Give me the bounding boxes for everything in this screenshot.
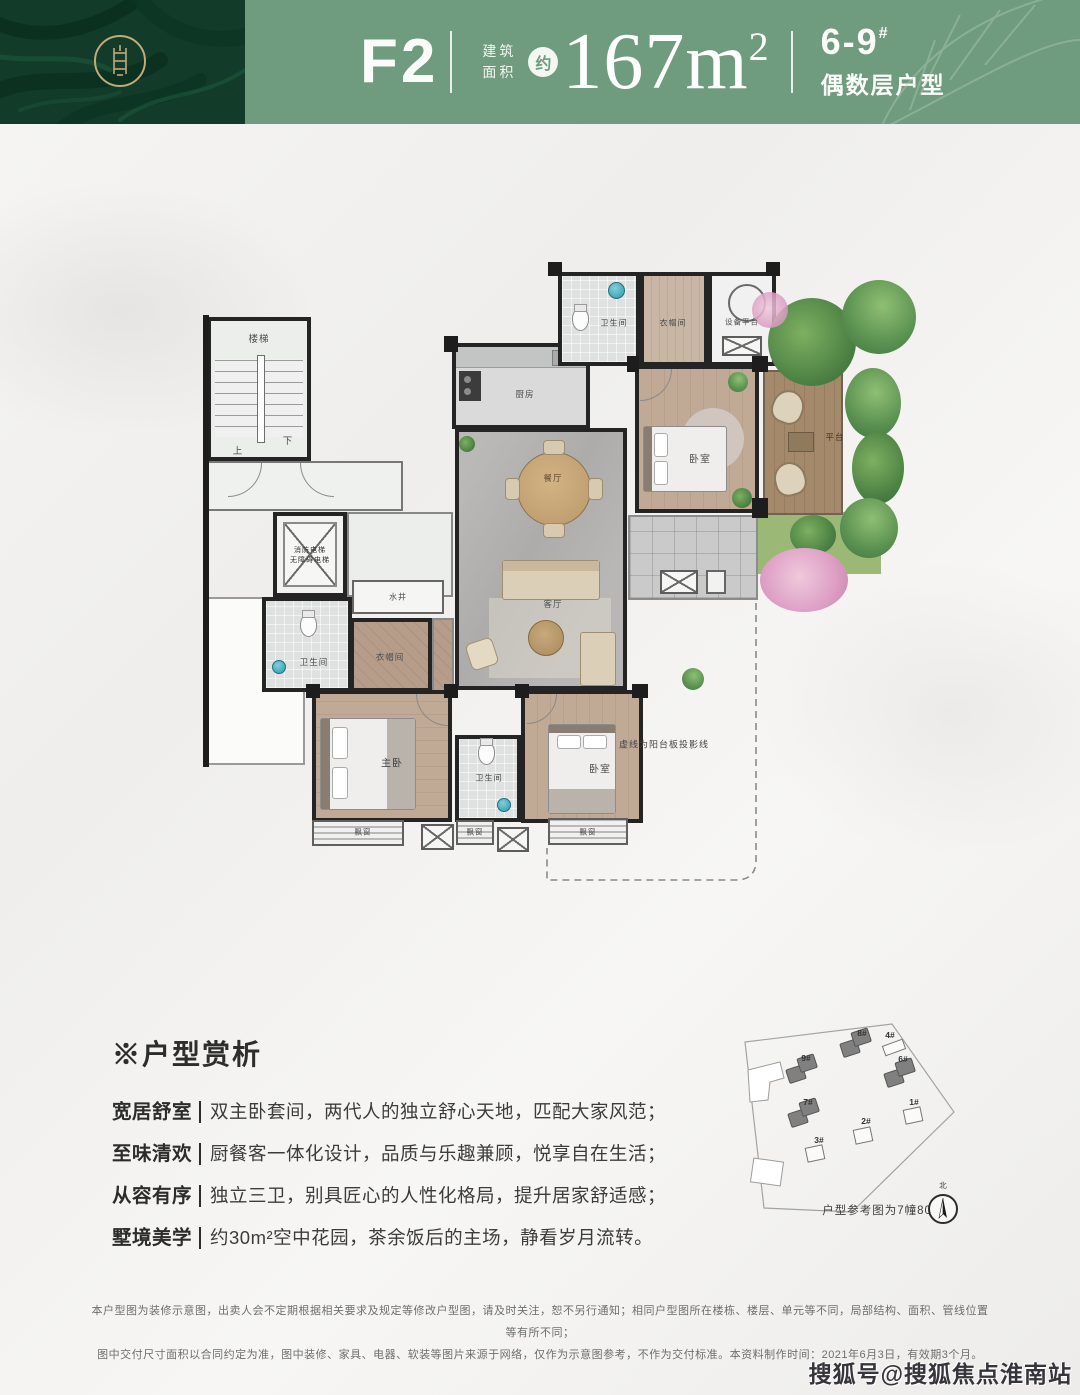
analysis-item-text: 厨餐客一体化设计，品质与乐趣兼顾，悦享自在生活； [210,1143,666,1164]
hedge-icon [845,368,901,438]
dining-chair-icon [505,478,520,500]
analysis-item: 从容有序独立三卫，别具匠心的人性化格局，提升居家舒适感； [112,1179,692,1208]
room-label-bay1: 飘窗 [355,827,372,838]
building-label: 6# [898,1054,907,1064]
toilet-icon [572,308,589,331]
plant-icon [682,668,704,690]
room-bath-top [558,272,640,366]
compass-icon [928,1194,958,1224]
room-label-bath-top: 卫生间 [601,318,628,329]
room-label-bedroom-top: 卧室 [689,451,711,466]
room-label-kitchen: 厨房 [515,388,534,400]
floor-plan: 楼梯 上 下 消防电梯 无障碍电梯 水井 卫生间 衣帽间 主卧 卫生间 [0,0,1080,1000]
burner [464,376,471,383]
headboard [321,719,330,809]
room-label-stairs: 楼梯 [248,331,269,345]
analysis-item: 至味清欢厨餐客一体化设计，品质与乐趣兼顾，悦享自在生活； [112,1137,692,1166]
sofa-icon [502,560,600,600]
analysis-item-text: 约30m²空中花园，茶余饭后的主场，静看岁月流转。 [210,1227,653,1248]
ac-platform [421,824,454,850]
building-label: 2# [861,1116,870,1126]
stairs-down-label: 下 [283,433,294,447]
pillow-icon [654,461,668,485]
room-label-bay3: 飘窗 [580,827,597,838]
analysis-item-label: 至味清欢 [112,1143,201,1165]
analysis-item-text: 独立三卫，别具匠心的人性化格局，提升居家舒适感； [210,1185,666,1206]
wall [306,684,320,698]
deck-table-icon [788,432,814,452]
analysis-item-label: 墅境美学 [112,1227,201,1249]
pillow-icon [557,735,581,749]
room-label-terrace: 平台 [825,431,844,443]
stair-rail [257,355,265,443]
building-label: 4# [885,1030,894,1040]
analysis-title-mark: ※ [112,1039,142,1070]
room-label-bath-mid: 卫生间 [300,656,329,668]
analysis-item-label: 从容有序 [112,1185,201,1207]
analysis-item-label: 宽居舒室 [112,1101,201,1123]
building-label: 1# [909,1097,918,1107]
analysis-title: ※户型赏析 [112,1033,692,1073]
dining-chair-icon [588,478,603,500]
room-label-bath-bottom: 卫生间 [476,773,503,784]
dining-chair-icon [543,523,565,538]
building-label: 8# [857,1028,866,1038]
flower-bush-icon [760,548,848,612]
hedge-icon [852,432,904,504]
plant-icon [459,436,475,452]
sink-icon [497,798,511,812]
building-label: 7# [803,1097,812,1107]
analysis-item-text: 双主卧套间，两代人的独立舒心天地，匹配大家风范； [210,1101,666,1122]
sink-icon [272,660,286,674]
pillow-icon [654,433,668,457]
burner [464,388,471,395]
compass-north-label: 北 [939,1180,947,1191]
toilet-icon [300,614,317,637]
room-label-bedroom-bottom: 卧室 [589,761,611,776]
disclaimer-line-1: 本户型图为装修示意图，出卖人会不定期根据相关要求及规定等修改户型图，请及时关注，… [90,1300,990,1344]
dining-chair-icon [543,440,565,455]
elevator-label-2: 无障碍电梯 [290,555,330,565]
hedge-icon [840,498,898,558]
sofa-back [503,561,599,571]
wall [752,498,768,518]
headboard [644,427,652,491]
pillow-icon [332,767,348,799]
ac-platform [497,827,529,852]
toilet-icon [478,742,495,765]
bed-icon [643,426,727,492]
room-label-shaft: 水井 [389,592,407,603]
plant-icon [732,488,752,508]
pillow-icon [332,727,348,759]
analysis-item: 墅境美学约30m²空中花园，茶余饭后的主场，静看岁月流转。 [112,1221,692,1250]
stairs-up-label: 上 [233,443,244,457]
wall [515,684,529,698]
room-label-master: 主卧 [381,755,403,770]
blanket [549,789,615,813]
room-label-equipment: 设备平台 [725,317,759,328]
wall [632,684,648,698]
wall [203,315,209,767]
coffee-table-icon [528,620,564,656]
watermark: 搜狐号@搜狐焦点淮南站 [809,1355,1072,1389]
wall [444,336,458,352]
plant-icon [728,372,748,392]
analysis-section: ※户型赏析 宽居舒室双主卧套间，两代人的独立舒心天地，匹配大家风范； 至味清欢厨… [112,1033,692,1250]
building-label: 9# [801,1053,810,1063]
sink-icon [608,282,625,299]
ac-platform [660,570,698,594]
room-label-cloak-top: 衣帽间 [660,318,687,329]
dining-table-icon [517,452,591,526]
analysis-title-text: 户型赏析 [142,1039,262,1070]
balcony-projection-note: 虚线为阳台板投影线 [619,738,709,751]
elevator-label-1: 消防电梯 [294,545,326,555]
wall [444,684,458,698]
wall [766,262,780,276]
equipment-box [706,570,726,594]
wall [627,356,639,372]
stove-icon [459,371,481,401]
room-label-bay2: 飘窗 [467,827,484,838]
tree-icon [842,280,916,354]
equipment-box [722,336,762,356]
sofa-icon [580,632,616,686]
analysis-item: 宽居舒室双主卧套间，两代人的独立舒心天地，匹配大家风范； [112,1095,692,1124]
hall-to-master [432,618,454,692]
room-label-living: 客厅 [543,598,562,610]
room-label-dining: 餐厅 [543,472,562,484]
headboard [549,725,615,733]
wall [752,356,768,372]
pillow-icon [583,735,607,749]
wall [548,262,562,276]
building-label: 3# [814,1135,823,1145]
room-label-cloak-mid: 衣帽间 [376,651,405,663]
